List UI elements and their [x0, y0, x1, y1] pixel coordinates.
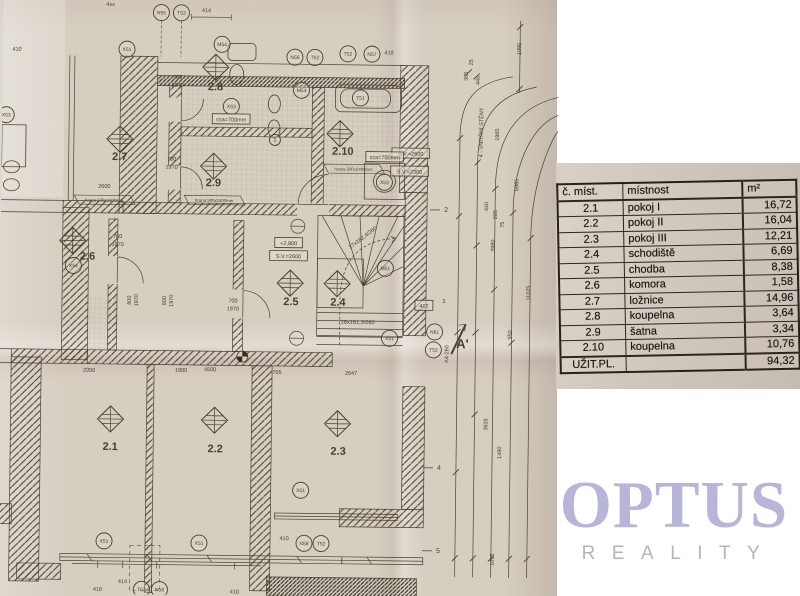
logo-subtitle: REALITY [548, 543, 800, 565]
svg-text:T52: T52 [317, 541, 326, 547]
dimension-label: A4-260 [444, 345, 450, 363]
dimension-label: 2647 [345, 371, 357, 377]
svg-text:S.V.=2300: S.V.=2300 [397, 169, 422, 175]
room-area: 12,21 [743, 227, 797, 244]
circled-label: X53 [223, 98, 239, 114]
svg-text:16x161,3/260: 16x161,3/260 [341, 320, 375, 326]
svg-text:T52: T52 [344, 52, 353, 58]
dimension-label: 1095 [490, 553, 496, 565]
boxed-label: S.V.=2600 [270, 250, 308, 260]
room-number: 2.3 [558, 231, 624, 248]
circled-label: N58 [296, 535, 312, 551]
dimension-label: 25 [469, 59, 475, 65]
dimension-label: 800 [127, 296, 133, 305]
header-room-number: č. míst. [557, 183, 623, 201]
svg-text:T52: T52 [177, 11, 186, 17]
boxed-label: cca=700mm [366, 152, 404, 162]
svg-text:M51: M51 [380, 266, 390, 272]
room-name: koupelna [625, 337, 745, 355]
svg-text:cca=700mm: cca=700mm [216, 117, 247, 123]
room-name: koupelna [625, 306, 745, 324]
svg-text:T52: T52 [311, 55, 320, 61]
room-symbol [324, 271, 350, 297]
washer-symbol [237, 351, 248, 362]
dimension-label: 700 [167, 157, 176, 163]
circled-label: T52 [425, 342, 441, 358]
room-area: 14,96 [744, 289, 798, 306]
svg-text:cca=700mm: cca=700mm [370, 155, 401, 161]
dimension-label: 410 [93, 587, 102, 593]
svg-text:N61: N61 [430, 330, 439, 336]
dimension-label: 6985 [514, 179, 520, 191]
svg-text:T52: T52 [137, 587, 146, 593]
dimension-label: 2600 [98, 184, 110, 190]
room-name: pokoj III [623, 228, 743, 246]
floor-plan-drawing: 2.12.22.32.42.52.62.72.82.92.10N55T52X51… [0, 0, 561, 596]
circled-label: M54 [293, 82, 309, 98]
circled-label: N55 [153, 4, 169, 20]
dimension-label: 1985 [495, 129, 501, 141]
room-symbol [97, 406, 123, 432]
svg-text:T51: T51 [356, 96, 365, 102]
svg-text:N58: N58 [299, 541, 308, 547]
circled-label: N57 [364, 46, 380, 62]
dimension-label: 75 [500, 222, 506, 228]
room-area: 8,38 [743, 258, 797, 275]
dimension-label: 385 [464, 72, 470, 81]
svg-text:X53: X53 [380, 180, 389, 186]
circled-label: T51 [352, 90, 368, 106]
room-area: 16,04 [742, 212, 796, 229]
room-number-label: 2.1 [102, 441, 117, 453]
room-number: 2.4 [558, 246, 624, 263]
room-number: 2.9 [559, 324, 625, 341]
dimension-label: 440 [476, 76, 482, 85]
dimension-label: 1970 [165, 165, 177, 171]
room-number-label: 2.7 [112, 151, 127, 163]
room-number-label: 2.3 [330, 446, 345, 458]
dimension-label: 1970 [227, 306, 239, 312]
total-area-value: 94,32 [745, 352, 799, 370]
boxed-label: cca=700mm [212, 114, 250, 124]
dimension-label: 414 [118, 579, 127, 585]
dimension-label: 205 [493, 210, 499, 219]
room-area: 10,76 [745, 336, 799, 353]
dimension-label: 705 [272, 370, 281, 376]
room-name: ložnice [624, 290, 744, 308]
dimension-label: 1970 [111, 242, 123, 248]
room-name: komora [624, 275, 744, 293]
dimension-label: 700 [228, 298, 237, 304]
room-name: šatna [625, 321, 745, 339]
svg-text:N58: N58 [155, 587, 164, 593]
circled-label: X51 [119, 41, 135, 57]
room-number: 2.7 [559, 293, 625, 310]
dimension-label: 1970 [134, 294, 140, 306]
room-number-label: 2.4 [330, 297, 346, 309]
header-room-name: místnost [622, 180, 742, 199]
screenshot-root: 2.12.22.32.42.52.62.72.82.92.10N55T52X51… [0, 0, 800, 596]
svg-text:X53: X53 [2, 112, 11, 118]
circled-label: T52 [307, 49, 323, 65]
room-number-label: 2.8 [208, 81, 223, 93]
room-number: 2.8 [559, 308, 625, 325]
circled-label: X54 [65, 257, 81, 273]
outside-area [1, 0, 65, 197]
dimension-label: 3980 [491, 239, 497, 251]
room-area: 3,34 [744, 320, 798, 337]
room-number: 2.6 [559, 277, 625, 294]
svg-text:N56: N56 [290, 55, 299, 61]
dimension-chains [449, 20, 560, 578]
circled-label: X53 [376, 174, 392, 190]
optus-logo: OPTUS REALITY [548, 470, 800, 565]
room-number: 2.5 [558, 262, 624, 279]
svg-text:4: 4 [437, 465, 441, 472]
dimension-label: 700 [113, 234, 122, 240]
logo-wordmark: OPTUS [548, 470, 800, 540]
dimension-label: 410 [230, 589, 239, 595]
room-area-table: č. míst. místnost m² 2.1pokoj I16,722.2p… [556, 178, 800, 374]
room-number-label: 2.9 [206, 177, 221, 189]
svg-text:S.V.=2600: S.V.=2600 [276, 254, 301, 260]
room-number-label: 2.2 [207, 443, 222, 455]
room-name: pokoj II [623, 213, 743, 231]
room-name: pokoj I [623, 197, 743, 215]
svg-text:412: 412 [419, 304, 428, 310]
room-area: 1,58 [743, 274, 797, 291]
circled-label: X51 [96, 533, 112, 549]
dimension-label: 1900 [175, 368, 187, 374]
header-area-m2: m² [742, 179, 796, 197]
svg-text:X51: X51 [195, 541, 204, 547]
dimension-label: 11025 [526, 286, 532, 301]
room-area: 3,64 [744, 305, 798, 322]
dimension-label: 1970 [171, 83, 183, 89]
circled-label: N61 [427, 324, 443, 340]
dimension-label: 800 [162, 296, 168, 305]
dimension-label: 4xx [106, 2, 115, 8]
circled-label: X51 [191, 535, 207, 551]
svg-text:N57: N57 [367, 52, 376, 58]
svg-text:+2,800: +2,800 [280, 241, 297, 247]
room-symbol [324, 411, 350, 437]
dimension-label: 1970 [169, 295, 175, 307]
svg-text:X51: X51 [100, 539, 109, 545]
room-area: 16,72 [742, 196, 796, 213]
room-name: schodiště [623, 244, 743, 262]
ref-mark: 4 [423, 465, 441, 472]
room-area: 6,69 [743, 243, 797, 260]
svg-text:hrana 500x2400mm: hrana 500x2400mm [334, 166, 373, 171]
dimension-label: 700 [173, 75, 182, 81]
svg-text:2: 2 [444, 207, 448, 214]
floor-plan-photo: 2.12.22.32.42.52.62.72.82.92.10N55T52X51… [0, 0, 557, 596]
svg-text:N55: N55 [157, 10, 166, 16]
svg-text:hrana 500x2400mm: hrana 500x2400mm [195, 198, 234, 203]
svg-text:5: 5 [436, 548, 440, 555]
circled-label: T52 [133, 581, 149, 596]
circled-label: M51 [377, 260, 393, 276]
svg-text:X51: X51 [385, 336, 394, 342]
svg-text:M54: M54 [217, 42, 227, 48]
svg-text:X54: X54 [69, 263, 78, 269]
boxed-label: +2,800 [275, 237, 303, 247]
total-spacer [626, 353, 746, 372]
room-number: 2.2 [557, 215, 623, 232]
ref-mark: 2 [430, 207, 448, 214]
side-note: 4 - VNITŘNÍ STĚNY [477, 107, 486, 157]
ref-mark: 5 [422, 548, 440, 555]
dimension-label: 410 [279, 536, 288, 542]
dimension-label: 1095 [517, 43, 523, 55]
dimension-label: 3635 [483, 418, 489, 430]
circled-label: X51 [381, 330, 397, 346]
boxed-label: S.V.=2300 [391, 166, 429, 176]
dimension-label: 2050 [83, 368, 95, 374]
svg-text:hrana 500x2400mm: hrana 500x2400mm [85, 197, 124, 202]
room-symbol [277, 270, 303, 296]
svg-text:X51: X51 [296, 488, 305, 494]
svg-text:X51: X51 [123, 47, 132, 53]
room-area-table-photo: č. míst. místnost m² 2.1pokoj I16,722.2p… [556, 163, 800, 389]
circled-label: N58 [151, 581, 167, 596]
circled-label: T52 [340, 46, 356, 62]
room-number: 2.10 [560, 339, 626, 356]
circled-label: M54 [214, 36, 230, 52]
circled-label: X51 [293, 482, 309, 498]
svg-text:M54: M54 [297, 88, 307, 94]
svg-text:X53: X53 [227, 104, 236, 110]
dimension-label: 1490 [497, 447, 503, 459]
room-number-label: 2.6 [80, 251, 95, 263]
boxed-label: 412 [415, 300, 433, 310]
room-number-label: 2.10 [332, 146, 354, 158]
dimension-label: 410 [384, 50, 393, 56]
room-number: 2.1 [557, 199, 623, 216]
dimension-label: 414 [202, 8, 211, 14]
circled-label: T52 [173, 5, 189, 21]
circled-label: 1 [269, 134, 280, 145]
circled-label: X53 [0, 107, 14, 123]
dimension-label: 950 [508, 330, 514, 339]
svg-text:T52: T52 [429, 348, 438, 354]
dimension-label: 3 [442, 299, 445, 305]
total-label: UŽIT.PL. [560, 355, 626, 373]
dimension-label: 410 [12, 47, 21, 53]
section-marker-label: A' [456, 336, 469, 351]
circled-label: T52 [313, 535, 329, 551]
room-name: chodba [624, 259, 744, 277]
room-number-label: 2.5 [283, 296, 298, 308]
dimension-label: 4500 [204, 367, 216, 373]
circled-label: N56 [287, 49, 303, 65]
room-symbol [201, 407, 227, 433]
dimension-label: 440 [484, 202, 490, 211]
